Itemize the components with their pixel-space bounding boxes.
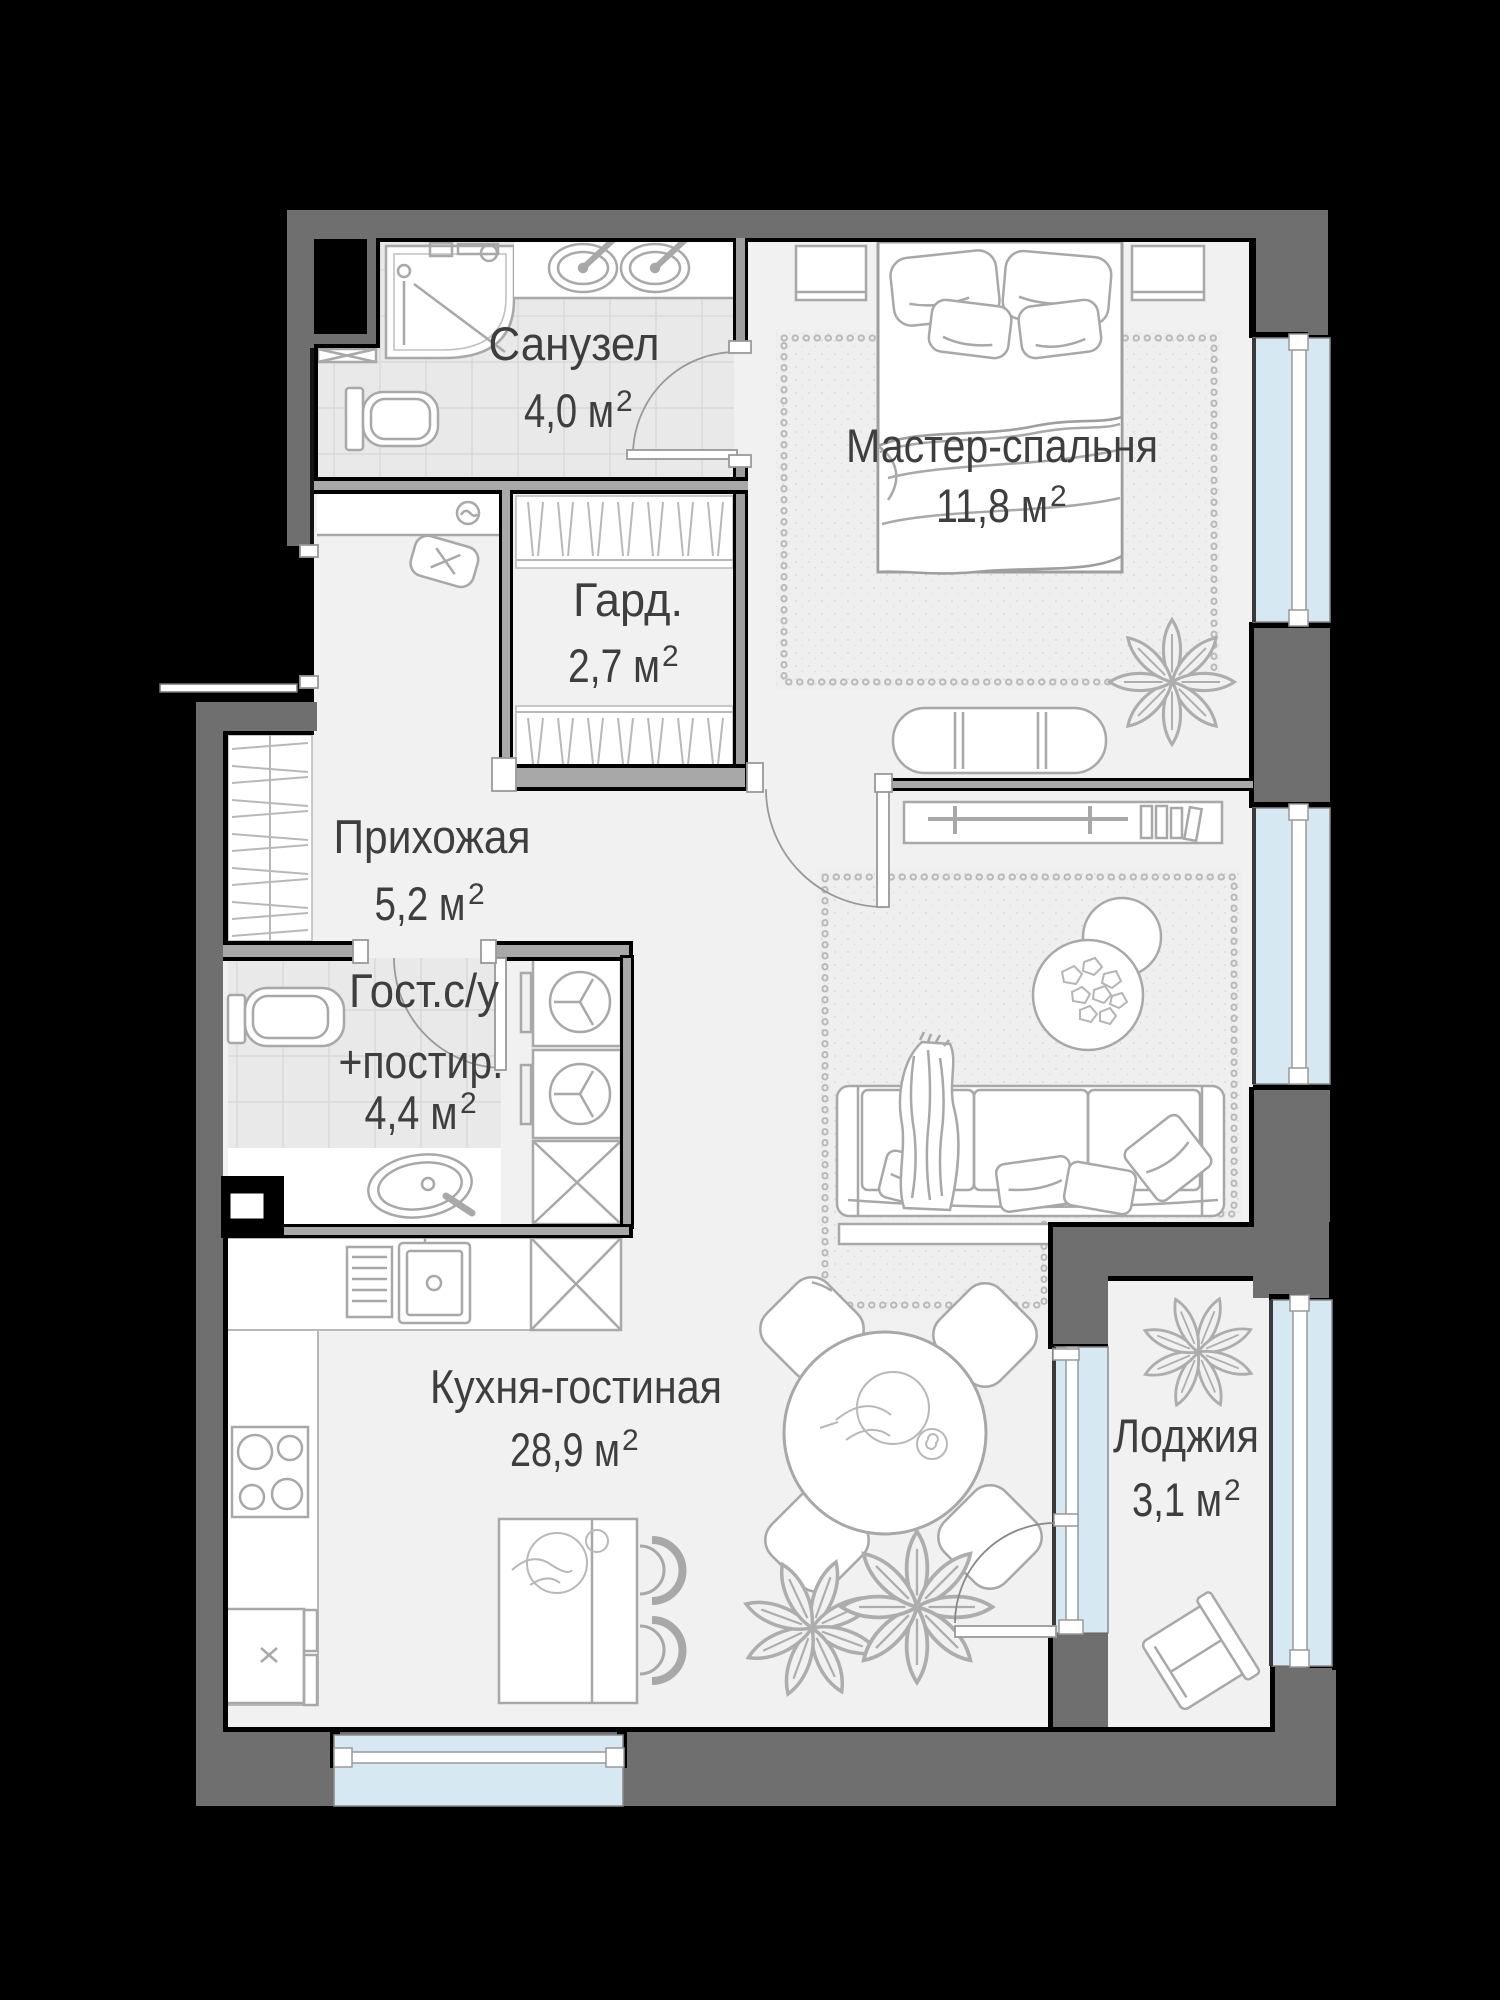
svg-text:4,0 м: 4,0 м [524,384,614,437]
svg-text:2: 2 [616,385,633,418]
svg-text:28,9 м: 28,9 м [510,1423,620,1476]
svg-text:Санузел: Санузел [489,317,660,370]
svg-text:2: 2 [622,1424,639,1457]
svg-text:+постир.: +постир. [339,1035,504,1088]
svg-text:Мастер-спальня: Мастер-спальня [846,419,1158,472]
svg-text:Прихожая: Прихожая [334,810,531,863]
svg-text:5,2 м: 5,2 м [375,877,466,930]
svg-text:3,1 м: 3,1 м [1132,1473,1222,1526]
svg-text:2: 2 [468,878,485,911]
svg-text:2: 2 [460,1087,477,1120]
svg-text:2: 2 [1224,1474,1241,1507]
svg-text:4,4 м: 4,4 м [365,1086,458,1139]
svg-text:Гост.с/у: Гост.с/у [349,964,499,1017]
svg-text:2,7 м: 2,7 м [568,639,660,692]
svg-text:2: 2 [1050,480,1067,513]
svg-text:2: 2 [662,640,679,673]
svg-text:11,8 м: 11,8 м [936,479,1048,532]
svg-text:Гард.: Гард. [573,573,683,626]
svg-text:Кухня-гостиная: Кухня-гостиная [430,1360,722,1413]
svg-text:Лоджия: Лоджия [1113,1409,1259,1462]
